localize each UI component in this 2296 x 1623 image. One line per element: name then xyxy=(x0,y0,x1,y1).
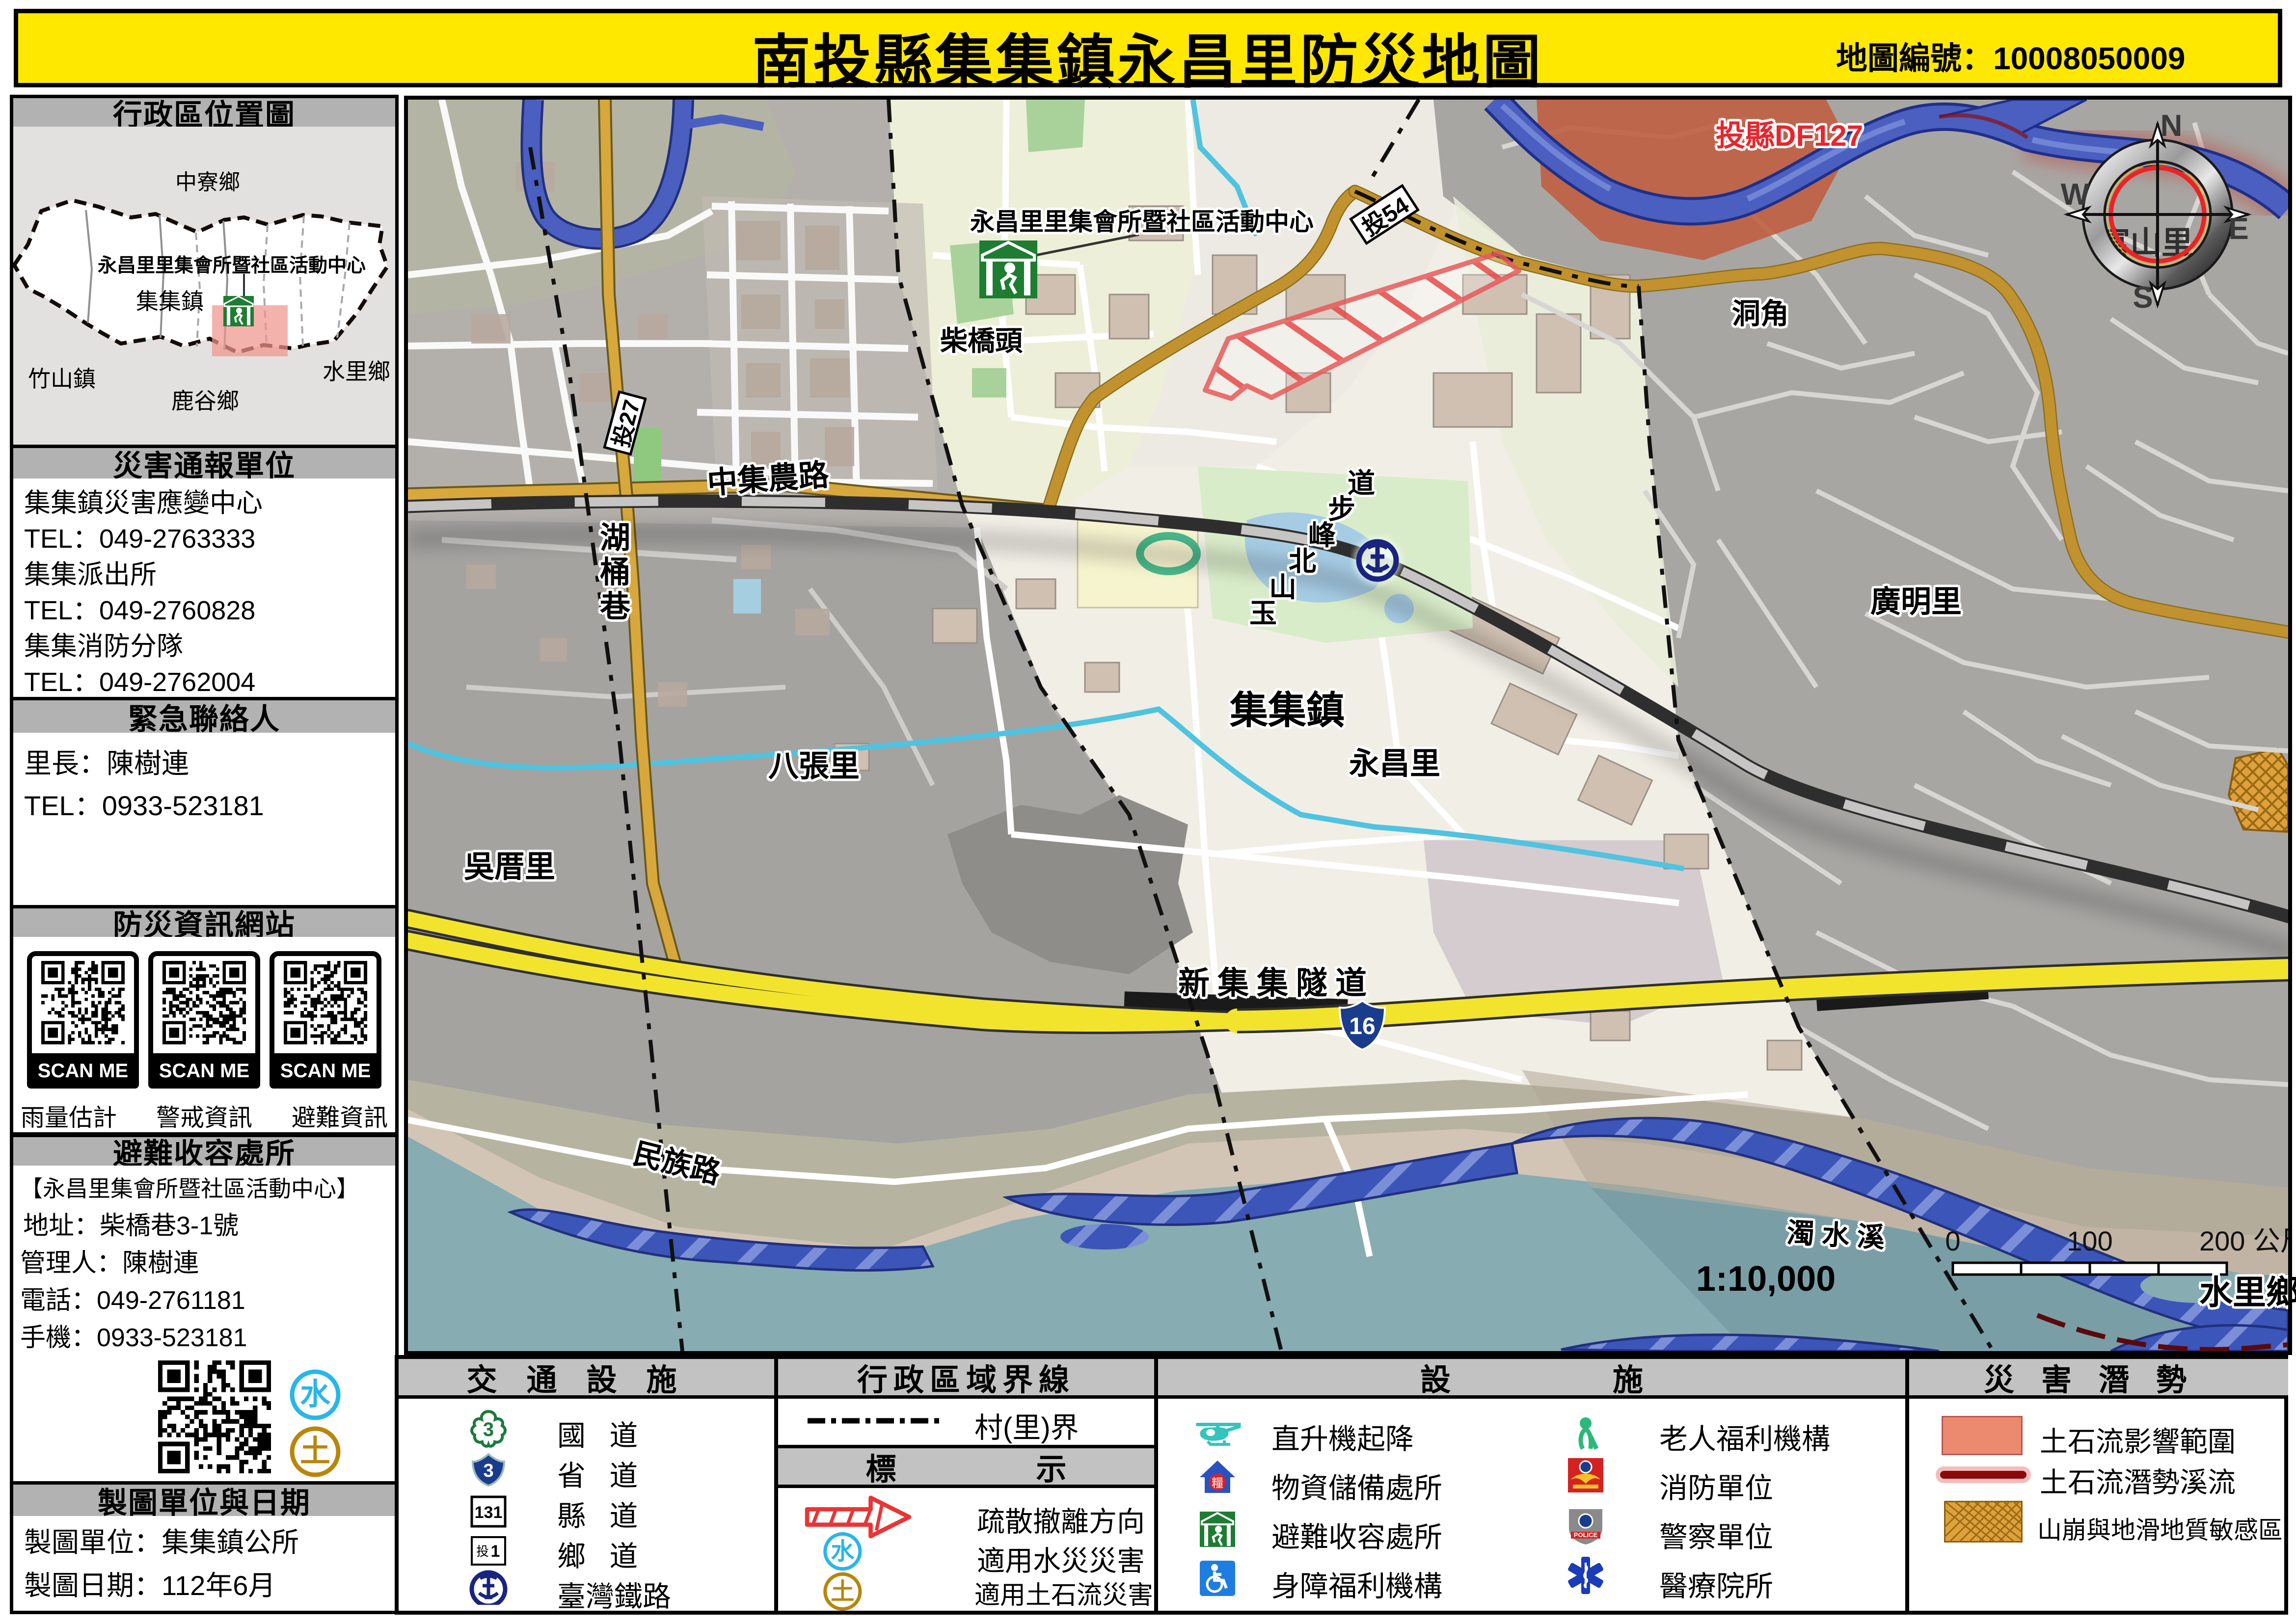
svg-text:鹿谷鄉: 鹿谷鄉 xyxy=(171,388,239,414)
svg-text:1: 1 xyxy=(491,1542,500,1561)
svg-text:3: 3 xyxy=(483,1461,493,1481)
svg-text:中寮鄉: 中寮鄉 xyxy=(175,170,240,194)
svg-text:集集鎮: 集集鎮 xyxy=(136,289,204,314)
svg-text:土: 土 xyxy=(300,1435,330,1468)
svg-text:POLICE: POLICE xyxy=(1574,1531,1598,1539)
svg-text:糧: 糧 xyxy=(1212,1477,1223,1490)
svg-text:131: 131 xyxy=(475,1503,503,1522)
svg-text:土: 土 xyxy=(831,1579,854,1605)
svg-text:竹山鎮: 竹山鎮 xyxy=(28,366,96,392)
svg-text:3: 3 xyxy=(483,1419,494,1440)
svg-text:永昌里里集會所暨社區活動中心: 永昌里里集會所暨社區活動中心 xyxy=(98,255,366,276)
svg-text:水: 水 xyxy=(831,1539,855,1565)
svg-text:投: 投 xyxy=(476,1544,489,1559)
svg-text:水里鄉: 水里鄉 xyxy=(323,359,390,384)
svg-text:水: 水 xyxy=(300,1378,331,1411)
